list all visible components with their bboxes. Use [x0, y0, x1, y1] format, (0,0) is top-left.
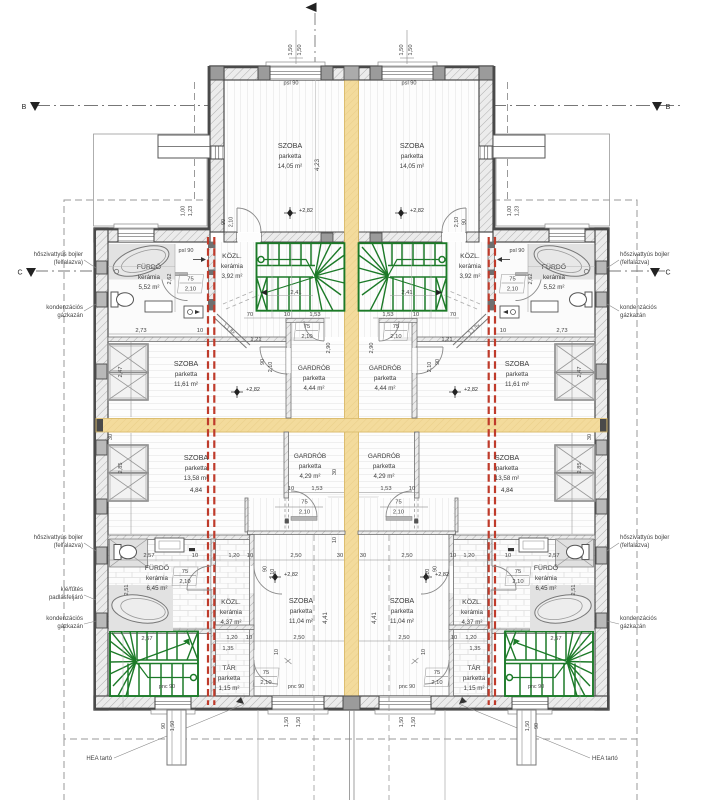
svg-text:1,50: 1,50: [399, 44, 405, 55]
svg-text:1,20: 1,20: [463, 553, 474, 559]
svg-text:2,47: 2,47: [118, 367, 124, 378]
svg-text:10: 10: [451, 635, 457, 641]
svg-text:B: B: [666, 104, 671, 111]
svg-text:1,00: 1,00: [181, 206, 187, 217]
svg-text:parketta: parketta: [279, 153, 302, 160]
svg-text:90: 90: [435, 359, 441, 365]
svg-text:kerámia: kerámia: [138, 274, 161, 281]
svg-text:HEA tartó: HEA tartó: [592, 756, 618, 762]
svg-text:hőszivattyús bojler: hőszivattyús bojler: [34, 535, 83, 541]
svg-text:kerámia: kerámia: [461, 609, 484, 616]
svg-text:SZOBA: SZOBA: [184, 453, 209, 462]
svg-text:FÜRDŐ: FÜRDŐ: [145, 563, 169, 572]
svg-text:90: 90: [260, 359, 266, 365]
svg-text:2,10: 2,10: [507, 287, 518, 293]
svg-text:75: 75: [304, 324, 310, 330]
svg-text:1,53: 1,53: [382, 312, 393, 318]
svg-text:30: 30: [587, 434, 593, 440]
svg-text:SZOBA: SZOBA: [390, 596, 415, 605]
svg-text:parketta: parketta: [299, 463, 322, 470]
svg-text:10: 10: [500, 328, 506, 334]
svg-text:GARDRÓB: GARDRÓB: [298, 363, 330, 372]
svg-text:10: 10: [197, 328, 203, 334]
svg-text:4,29 m²: 4,29 m²: [374, 473, 395, 480]
svg-text:pnc 90: pnc 90: [399, 684, 415, 690]
svg-text:10: 10: [413, 312, 419, 318]
svg-text:(felfalazva): (felfalazva): [54, 543, 83, 549]
svg-text:2,41: 2,41: [290, 290, 301, 296]
svg-text:1,23: 1,23: [515, 206, 521, 217]
svg-text:75: 75: [187, 277, 193, 283]
svg-text:90: 90: [161, 723, 167, 729]
svg-text:1,23: 1,23: [188, 206, 194, 217]
svg-text:1,50: 1,50: [408, 44, 414, 55]
svg-text:1,20: 1,20: [465, 635, 476, 641]
svg-text:2,10: 2,10: [512, 579, 523, 585]
svg-text:1,50: 1,50: [411, 717, 417, 728]
svg-text:2,10: 2,10: [427, 362, 433, 373]
svg-text:1,21: 1,21: [250, 337, 261, 343]
svg-text:14,05 m²: 14,05 m²: [278, 163, 302, 170]
svg-text:SZOBA: SZOBA: [289, 596, 314, 605]
svg-text:10: 10: [192, 553, 198, 559]
svg-text:11,61 m²: 11,61 m²: [174, 381, 198, 388]
svg-text:2,90: 2,90: [326, 343, 332, 354]
svg-text:parketta: parketta: [303, 375, 326, 382]
svg-text:hőszivattyús bojler: hőszivattyús bojler: [620, 252, 669, 258]
svg-text:2,57: 2,57: [141, 636, 152, 642]
svg-text:GARDRÓB: GARDRÓB: [294, 451, 326, 460]
svg-text:75: 75: [393, 324, 399, 330]
svg-text:2,51: 2,51: [571, 585, 577, 596]
svg-text:3,92 m²: 3,92 m²: [460, 273, 481, 280]
svg-text:75: 75: [263, 670, 269, 676]
svg-text:10: 10: [332, 537, 338, 543]
svg-text:1,53: 1,53: [380, 486, 391, 492]
svg-text:2,10: 2,10: [260, 680, 271, 686]
svg-text:+2,82: +2,82: [410, 208, 424, 214]
svg-text:gázkazán: gázkazán: [620, 313, 646, 319]
svg-text:13,58 m²: 13,58 m²: [495, 475, 519, 482]
svg-text:1,50: 1,50: [170, 721, 176, 732]
svg-text:2,51: 2,51: [124, 585, 130, 596]
svg-text:1,50: 1,50: [296, 717, 302, 728]
svg-text:90: 90: [433, 566, 439, 572]
svg-text:4,44 m²: 4,44 m²: [304, 385, 325, 392]
svg-text:1,50: 1,50: [288, 44, 294, 55]
svg-text:30: 30: [360, 553, 366, 559]
svg-text:2,50: 2,50: [398, 635, 409, 641]
svg-text:2,10: 2,10: [299, 510, 310, 516]
svg-text:4,44 m²: 4,44 m²: [375, 385, 396, 392]
svg-text:1,50: 1,50: [297, 44, 303, 55]
svg-text:2,57: 2,57: [548, 553, 559, 559]
svg-text:1,21: 1,21: [441, 337, 452, 343]
svg-text:kondenzációs: kondenzációs: [620, 616, 657, 622]
svg-text:parketta: parketta: [185, 465, 208, 472]
svg-text:psl 90: psl 90: [284, 81, 299, 87]
svg-text:2,85: 2,85: [577, 463, 583, 474]
svg-text:70: 70: [247, 312, 253, 318]
svg-text:2,10: 2,10: [393, 510, 404, 516]
svg-text:padlásfeljáró: padlásfeljáró: [49, 595, 84, 601]
svg-text:4,37 m²: 4,37 m²: [462, 619, 483, 626]
svg-text:2,10: 2,10: [431, 680, 442, 686]
svg-text:gázkazán: gázkazán: [620, 624, 646, 630]
svg-text:2,47: 2,47: [577, 367, 583, 378]
svg-text:pnc 90: pnc 90: [159, 684, 175, 690]
svg-text:2,10: 2,10: [268, 362, 274, 373]
svg-text:parketta: parketta: [373, 463, 396, 470]
svg-text:1,15 m²: 1,15 m²: [464, 685, 485, 692]
svg-text:6,45 m²: 6,45 m²: [147, 585, 168, 592]
svg-text:kerámia: kerámia: [459, 263, 482, 270]
svg-text:2,50: 2,50: [290, 553, 301, 559]
svg-text:parketta: parketta: [218, 675, 241, 682]
svg-text:1,53: 1,53: [309, 312, 320, 318]
svg-text:parketta: parketta: [374, 375, 397, 382]
svg-text:1,35: 1,35: [469, 646, 480, 652]
svg-text:4,41: 4,41: [323, 612, 329, 624]
svg-text:1,50: 1,50: [284, 717, 290, 728]
svg-text:4,84: 4,84: [190, 487, 203, 494]
svg-text:B: B: [22, 104, 27, 111]
svg-text:2,50: 2,50: [293, 635, 304, 641]
svg-text:SZOBA: SZOBA: [400, 141, 425, 150]
svg-text:GARDRÓB: GARDRÓB: [369, 363, 401, 372]
svg-text:2,50: 2,50: [401, 553, 412, 559]
svg-text:10: 10: [450, 553, 456, 559]
svg-text:kerámia: kerámia: [220, 609, 243, 616]
svg-text:1,50: 1,50: [525, 721, 531, 732]
svg-text:2,62: 2,62: [528, 274, 534, 285]
svg-text:75: 75: [182, 569, 188, 575]
svg-text:11,04 m²: 11,04 m²: [390, 618, 414, 625]
svg-text:2,73: 2,73: [135, 328, 146, 334]
svg-text:1,53: 1,53: [311, 486, 322, 492]
svg-text:10: 10: [421, 649, 427, 655]
svg-text:kerámia: kerámia: [543, 274, 566, 281]
svg-text:psl 90: psl 90: [510, 248, 525, 254]
svg-text:75: 75: [395, 500, 401, 506]
svg-text:TÁR: TÁR: [222, 663, 235, 672]
svg-text:4,41: 4,41: [372, 612, 378, 624]
svg-text:HEA tartó: HEA tartó: [86, 756, 112, 762]
svg-text:(felfalazva): (felfalazva): [54, 260, 83, 266]
svg-text:2,57: 2,57: [550, 636, 561, 642]
svg-text:30: 30: [332, 469, 338, 475]
svg-text:10: 10: [247, 553, 253, 559]
svg-text:30: 30: [108, 434, 114, 440]
svg-text:1,35: 1,35: [222, 646, 233, 652]
svg-text:KÖZL.: KÖZL.: [460, 252, 480, 260]
svg-text:1,00: 1,00: [507, 206, 513, 217]
svg-text:psl 90: psl 90: [402, 81, 417, 87]
svg-text:kondenzációs: kondenzációs: [46, 616, 83, 622]
svg-text:2,57: 2,57: [143, 553, 154, 559]
svg-text:1,20: 1,20: [228, 553, 239, 559]
svg-text:14,05 m²: 14,05 m²: [400, 163, 424, 170]
svg-text:+2,82: +2,82: [284, 572, 298, 578]
svg-text:5,52 m²: 5,52 m²: [139, 284, 160, 291]
svg-text:11,61 m²: 11,61 m²: [505, 381, 529, 388]
svg-text:2,10: 2,10: [179, 579, 190, 585]
svg-text:SZOBA: SZOBA: [174, 359, 199, 368]
svg-text:parketta: parketta: [401, 153, 424, 160]
svg-text:1,20: 1,20: [226, 635, 237, 641]
svg-text:2,10: 2,10: [185, 287, 196, 293]
svg-text:90: 90: [221, 219, 227, 225]
svg-text:GARDRÓB: GARDRÓB: [368, 451, 400, 460]
svg-text:4,84: 4,84: [501, 487, 514, 494]
svg-text:C: C: [665, 270, 670, 277]
svg-text:10: 10: [288, 486, 294, 492]
svg-text:klé/fűtés: klé/fűtés: [61, 587, 83, 593]
svg-text:11,04 m²: 11,04 m²: [289, 618, 313, 625]
svg-text:hőszivattyús bojler: hőszivattyús bojler: [34, 252, 83, 258]
svg-text:SZOBA: SZOBA: [495, 453, 520, 462]
svg-text:10: 10: [246, 635, 252, 641]
svg-text:1,15 m²: 1,15 m²: [219, 685, 240, 692]
svg-text:KÖZL.: KÖZL.: [222, 252, 242, 260]
svg-text:parketta: parketta: [391, 608, 414, 615]
svg-text:6,45 m²: 6,45 m²: [536, 585, 557, 592]
svg-text:2,10: 2,10: [229, 217, 235, 228]
svg-text:3,92 m²: 3,92 m²: [222, 273, 243, 280]
svg-text:pnc 90: pnc 90: [288, 684, 304, 690]
svg-text:+2,82: +2,82: [464, 387, 478, 393]
svg-text:(felfalazva): (felfalazva): [620, 543, 649, 549]
svg-text:10: 10: [505, 553, 511, 559]
svg-text:parketta: parketta: [290, 608, 313, 615]
svg-text:90: 90: [534, 723, 540, 729]
svg-text:2,10: 2,10: [390, 334, 401, 340]
svg-text:75: 75: [515, 569, 521, 575]
svg-text:2,90: 2,90: [369, 343, 375, 354]
svg-text:SZOBA: SZOBA: [505, 359, 530, 368]
svg-text:TÁR: TÁR: [467, 663, 480, 672]
svg-text:90: 90: [462, 219, 468, 225]
svg-text:4,37 m²: 4,37 m²: [221, 619, 242, 626]
svg-text:2,10: 2,10: [425, 569, 431, 580]
svg-text:2,73: 2,73: [556, 328, 567, 334]
svg-text:KÖZL.: KÖZL.: [221, 598, 241, 606]
svg-text:kerámia: kerámia: [535, 575, 558, 582]
svg-text:70: 70: [450, 312, 456, 318]
svg-text:C: C: [17, 270, 22, 277]
svg-text:gázkazán: gázkazán: [57, 624, 83, 630]
svg-text:parketta: parketta: [496, 465, 519, 472]
svg-text:kerámia: kerámia: [146, 575, 169, 582]
svg-text:10: 10: [409, 486, 415, 492]
svg-text:75: 75: [301, 500, 307, 506]
svg-text:+2,82: +2,82: [299, 208, 313, 214]
svg-text:parketta: parketta: [506, 371, 529, 378]
svg-text:2,10: 2,10: [301, 334, 312, 340]
svg-text:2,41: 2,41: [401, 290, 412, 296]
svg-text:13,58 m²: 13,58 m²: [184, 475, 208, 482]
svg-text:psl 90: psl 90: [179, 248, 194, 254]
svg-text:2,62: 2,62: [167, 274, 173, 285]
svg-text:2,10: 2,10: [270, 569, 276, 580]
svg-text:hőszivattyús bojler: hőszivattyús bojler: [620, 535, 669, 541]
svg-text:4,23: 4,23: [314, 158, 321, 171]
svg-text:pnc 90: pnc 90: [528, 684, 544, 690]
svg-text:30: 30: [337, 553, 343, 559]
svg-text:10: 10: [274, 649, 280, 655]
svg-text:FÜRDŐ: FÜRDŐ: [534, 563, 558, 572]
svg-text:5,52 m²: 5,52 m²: [544, 284, 565, 291]
svg-text:75: 75: [509, 277, 515, 283]
svg-text:90: 90: [263, 566, 269, 572]
svg-text:+2,82: +2,82: [246, 387, 260, 393]
svg-text:(felfalazva): (felfalazva): [620, 260, 649, 266]
svg-text:kerámia: kerámia: [221, 263, 244, 270]
svg-text:4,29 m²: 4,29 m²: [300, 473, 321, 480]
svg-text:parketta: parketta: [463, 675, 486, 682]
svg-text:1,50: 1,50: [399, 717, 405, 728]
svg-text:10: 10: [284, 312, 290, 318]
svg-text:2,85: 2,85: [118, 463, 124, 474]
svg-text:2,10: 2,10: [454, 217, 460, 228]
svg-text:KÖZL.: KÖZL.: [462, 598, 482, 606]
svg-text:kondenzációs: kondenzációs: [620, 305, 657, 311]
svg-text:SZOBA: SZOBA: [278, 141, 303, 150]
svg-text:75: 75: [434, 670, 440, 676]
svg-text:gázkazán: gázkazán: [57, 313, 83, 319]
svg-text:parketta: parketta: [175, 371, 198, 378]
svg-text:kondenzációs: kondenzációs: [46, 305, 83, 311]
